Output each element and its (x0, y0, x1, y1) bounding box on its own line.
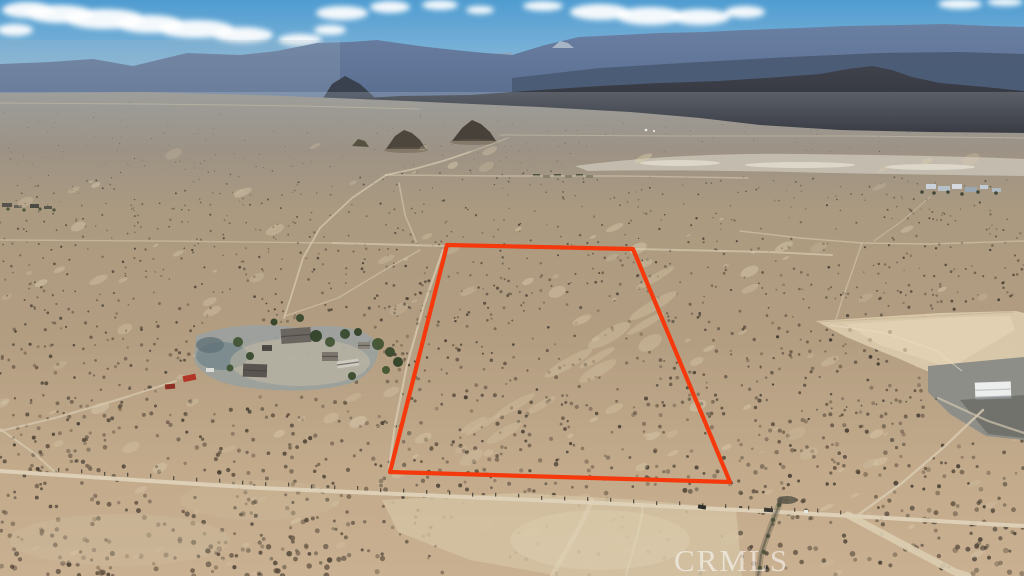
aerial-photo: CRMLS (0, 0, 1024, 576)
aerial-photo-scene (0, 0, 1024, 576)
horizon-haze (0, 92, 1024, 152)
haze-left (0, 40, 340, 98)
